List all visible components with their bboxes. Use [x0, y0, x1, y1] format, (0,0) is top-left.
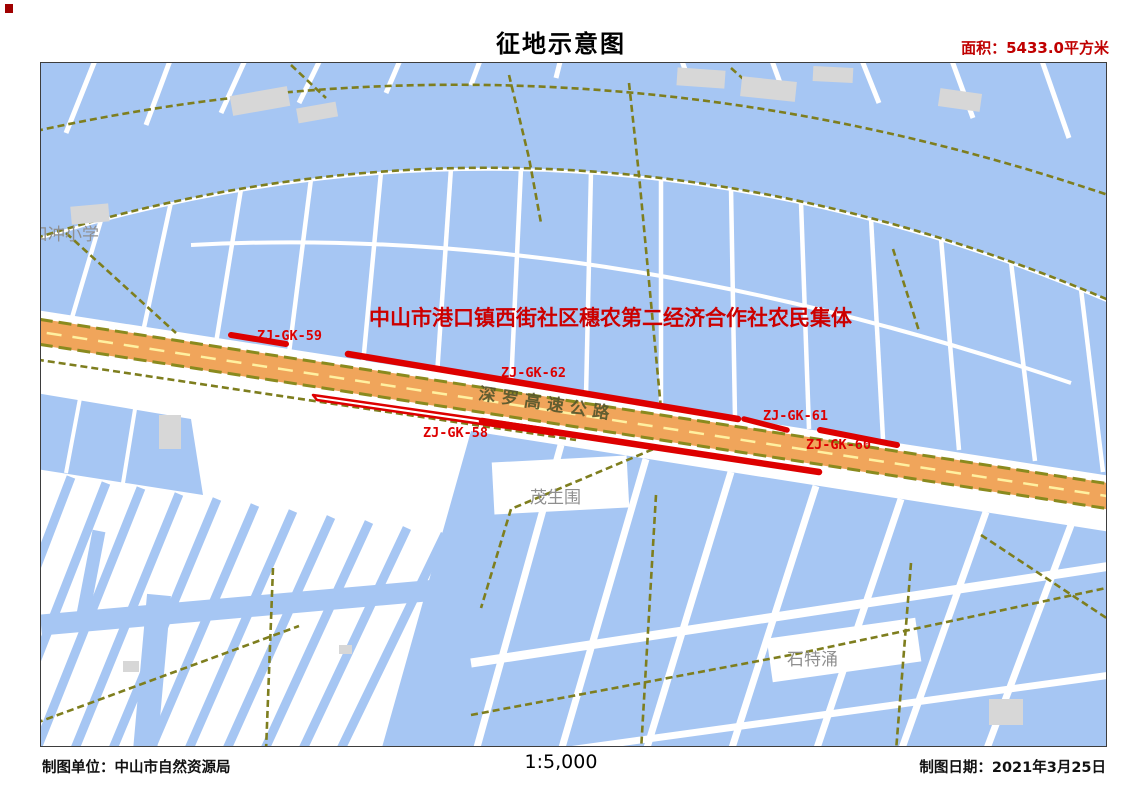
map-frame: 深罗高速公路 口冲小学 茂生围 石特涌 ZJ-GK-58 ZJ-GK-59 ZJ…	[40, 62, 1107, 747]
place-label-shiteyong: 石特涌	[787, 650, 838, 670]
land-acquisition-map-page: 征地示意图 面积：5433.0平方米	[0, 0, 1122, 794]
place-label-kouchong-school: 口冲小学	[41, 225, 99, 245]
place-label-maoshengwei: 茂生围	[530, 488, 581, 508]
map-canvas: 深罗高速公路 口冲小学 茂生围 石特涌 ZJ-GK-58 ZJ-GK-59 ZJ…	[41, 63, 1106, 746]
owner-collective-label: 中山市港口镇西街社区穗农第二经济合作社农民集体	[369, 306, 853, 330]
parcel-label-zj-gk-59: ZJ-GK-59	[257, 328, 322, 344]
parcel-label-zj-gk-58: ZJ-GK-58	[423, 425, 488, 441]
date-label: 制图日期：2021年3月25日	[919, 756, 1106, 777]
parcel-label-zj-gk-62: ZJ-GK-62	[501, 365, 566, 381]
page-title: 征地示意图	[0, 24, 1122, 59]
parcel-label-zj-gk-60: ZJ-GK-60	[806, 437, 871, 453]
area-value: 面积：5433.0平方米	[961, 37, 1109, 58]
corner-mark	[5, 4, 13, 13]
parcel-label-zj-gk-61: ZJ-GK-61	[763, 408, 828, 424]
